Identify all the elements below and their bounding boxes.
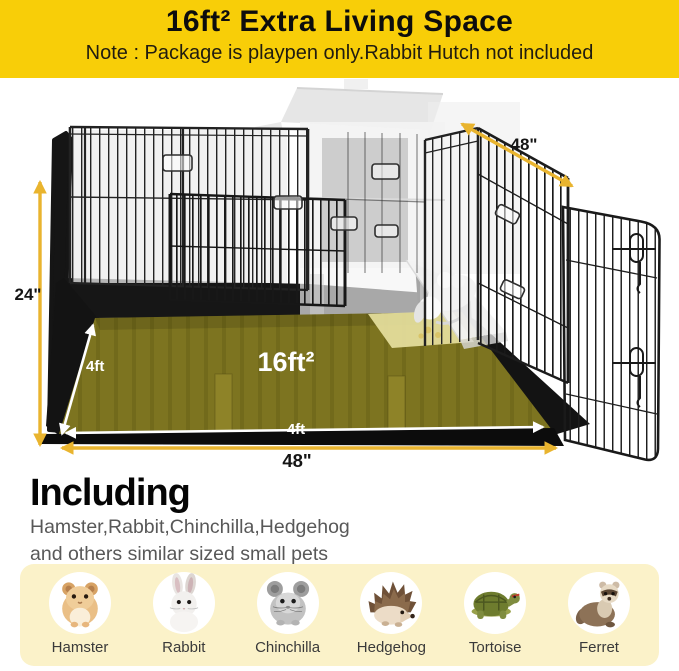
pen-door [558, 202, 666, 466]
wire-panel-divider [166, 190, 350, 310]
pet-label: Hamster [52, 639, 109, 656]
pet-label: Chinchilla [255, 639, 320, 656]
pet-item-hedgehog: Hedgehog [343, 572, 439, 656]
pet-label: Hedgehog [357, 639, 426, 656]
playpen-diagram: 48" 24" 48" 4ft 4ft 16ft² [0, 78, 679, 472]
dim-label-top-right: 48" [511, 135, 538, 154]
playpen-illustration: 48" 24" 48" 4ft 4ft 16ft² [0, 78, 679, 472]
dim-label-mat-depth: 4ft [86, 358, 104, 375]
pet-item-chinchilla: Chinchilla [240, 572, 336, 656]
header-banner: 16ft² Extra Living Space Note : Package … [0, 0, 679, 78]
pet-label: Ferret [579, 639, 619, 656]
including-section: Including Hamster,Rabbit,Chinchilla,Hedg… [30, 473, 650, 567]
dim-label-bottom: 48" [282, 450, 311, 471]
pet-item-hamster: Hamster [32, 572, 128, 656]
ferret-icon [568, 572, 630, 634]
hedgehog-icon [360, 572, 422, 634]
pet-item-rabbit: Rabbit [136, 572, 232, 656]
dim-label-mat-width: 4ft [287, 421, 305, 438]
pet-label: Tortoise [469, 639, 522, 656]
chinchilla-icon [257, 572, 319, 634]
pet-label: Rabbit [162, 639, 205, 656]
wire-panel-front-right [474, 124, 572, 388]
product-image: 16ft² Extra Living Space Note : Package … [0, 0, 679, 671]
including-line1: Hamster,Rabbit,Chinchilla,Hedgehog [30, 515, 650, 540]
mat-strap [215, 374, 232, 436]
pet-item-tortoise: Tortoise [447, 572, 543, 656]
pet-item-ferret: Ferret [551, 572, 647, 656]
hamster-icon [49, 572, 111, 634]
header-note: Note : Package is playpen only.Rabbit Hu… [0, 40, 679, 66]
rabbit-icon [153, 572, 215, 634]
page-title: 16ft² Extra Living Space [0, 5, 679, 39]
wire-panel-right [421, 124, 482, 350]
dim-label-left: 24" [15, 285, 42, 304]
tortoise-icon [464, 572, 526, 634]
area-label: 16ft² [257, 347, 314, 377]
pets-panel: Hamster Rabbit [20, 564, 659, 666]
including-heading: Including [30, 473, 650, 513]
